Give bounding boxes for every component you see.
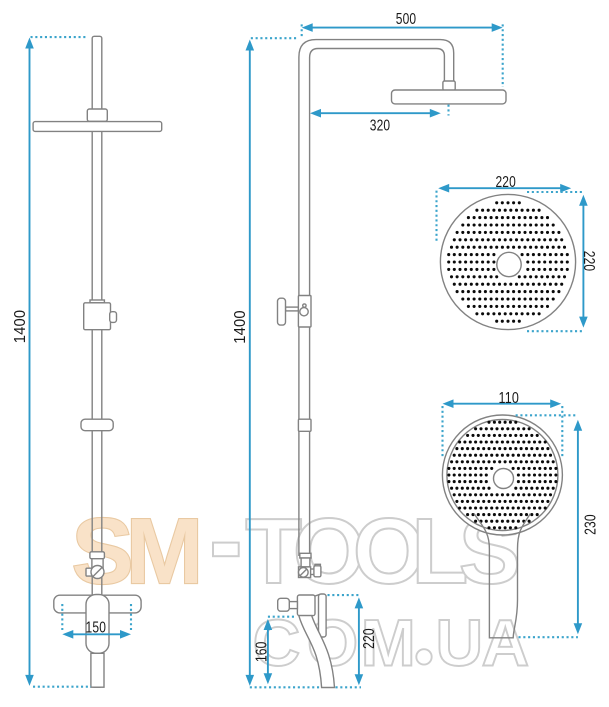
svg-text:220: 220 [495, 174, 516, 191]
svg-text:220: 220 [361, 628, 378, 649]
svg-text:230: 230 [582, 514, 599, 535]
svg-text:500: 500 [396, 11, 417, 28]
svg-text:U: U [435, 606, 483, 680]
svg-text:M: M [126, 499, 203, 603]
svg-text:320: 320 [370, 118, 391, 135]
svg-text:220: 220 [580, 251, 597, 272]
svg-text:A: A [481, 606, 529, 680]
svg-text:110: 110 [499, 390, 520, 407]
svg-text:1400: 1400 [12, 310, 29, 344]
svg-text:1400: 1400 [232, 310, 249, 344]
svg-text:160: 160 [253, 641, 270, 662]
svg-text:150: 150 [86, 620, 107, 637]
svg-text:S: S [72, 499, 134, 603]
